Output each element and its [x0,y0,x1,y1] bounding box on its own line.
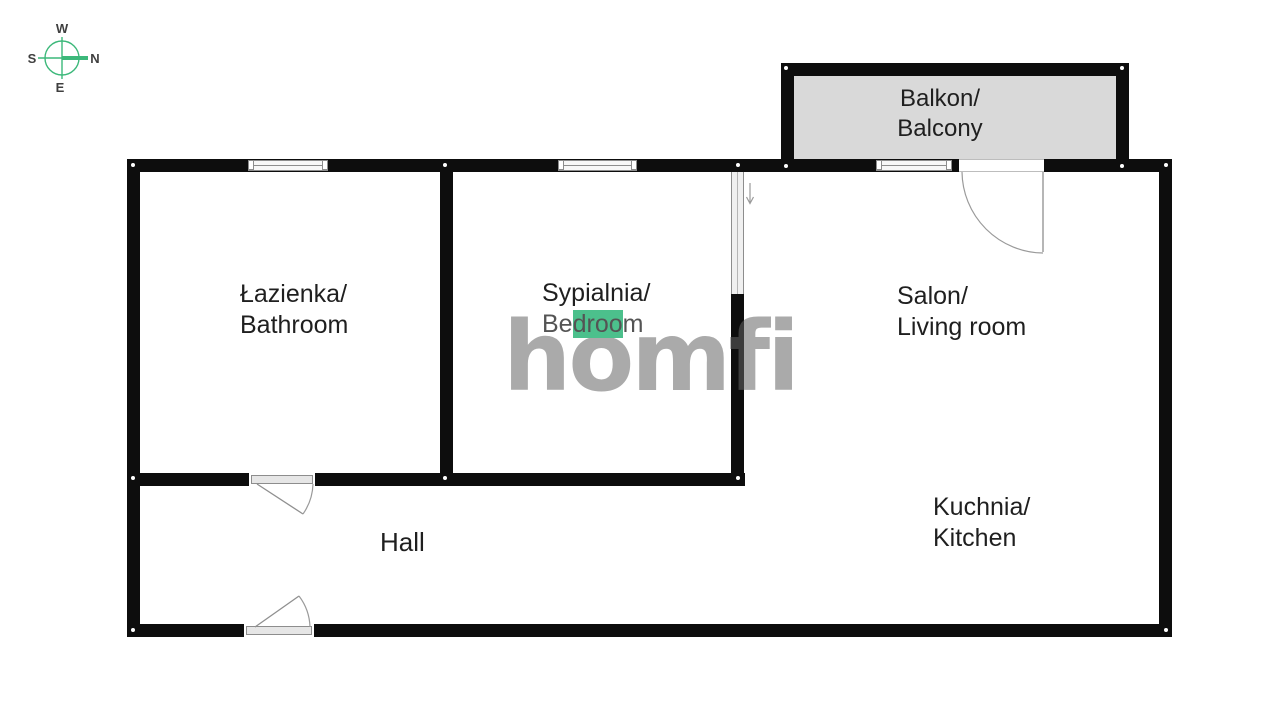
balcony-door-opening [959,159,1044,172]
wall-hall-divider [133,473,745,486]
compass-rose: W S N E [25,20,135,100]
bedroom-sliding-door [731,172,744,294]
bedroom-label-pl: Sypialnia/ [542,278,650,309]
bathroom-window [248,160,328,171]
balcony-label-pl: Balkon/ [781,84,1099,114]
wall-junction-dot [1164,163,1168,167]
kitchen-label: Kuchnia/ Kitchen [933,492,1030,554]
compass-label-east: E [56,80,65,95]
balcony-window [876,160,952,171]
wall-junction-dot [131,628,135,632]
window-cap [322,160,328,170]
bathroom-door-threshold [251,475,313,484]
living-room-label-en: Living room [897,312,1026,343]
window-frame-line [877,165,951,166]
hall-label: Hall [380,527,425,558]
bedroom-label: Sypialnia/ Bedroom [542,278,650,340]
window-cap [946,160,952,170]
wall-junction-dot [736,476,740,480]
wall-junction-dot [1120,164,1124,168]
compass-label-north: N [90,51,99,66]
wall-junction-dot [131,476,135,480]
compass-label-south: S [28,51,37,66]
wall-bathroom-bedroom [440,162,453,484]
kitchen-label-en: Kitchen [933,523,1030,554]
wall-junction-dot [784,164,788,168]
wall-junction-dot [1164,628,1168,632]
bathroom-label-en: Bathroom [240,310,348,341]
balcony-label-en: Balcony [781,114,1099,144]
entrance-door-threshold [246,626,312,635]
bedroom-label-en-pre: Be [542,310,573,338]
bedroom-window [558,160,637,171]
window-frame-line [249,165,327,166]
bathroom-label-pl: Łazienka/ [240,279,348,310]
compass-label-west: W [56,21,69,36]
wall-junction-dot [736,163,740,167]
kitchen-label-pl: Kuchnia/ [933,492,1030,523]
wall-junction-dot [1120,66,1124,70]
living-room-label-pl: Salon/ [897,281,1026,312]
window-cap [248,160,254,170]
living-room-label: Salon/ Living room [897,281,1026,343]
wall-junction-dot [443,163,447,167]
wall-junction-dot [443,476,447,480]
bedroom-label-en-highlight: droo [573,310,623,338]
window-cap [876,160,882,170]
bedroom-label-en-post: m [623,310,644,338]
window-cap [631,160,637,170]
balcony-label: Balkon/ Balcony [781,84,1129,144]
window-frame-line [559,165,636,166]
bedroom-label-en: Bedroom [542,309,650,340]
sliding-door-line [737,172,738,294]
wall-junction-dot [131,163,135,167]
balcony-door-jamb [951,159,959,172]
window-cap [558,160,564,170]
wall-junction-dot [784,66,788,70]
floor-plan: W S N E [0,0,1280,713]
bathroom-label: Łazienka/ Bathroom [240,279,348,341]
